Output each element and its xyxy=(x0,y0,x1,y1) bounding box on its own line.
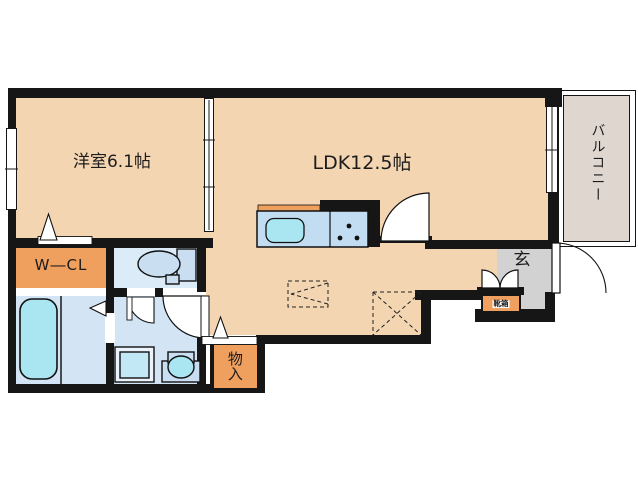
floor-washroom xyxy=(114,296,197,384)
room-label-shoebox: 靴箱 xyxy=(493,300,510,308)
room-label-wcl: W―CL xyxy=(35,258,88,274)
sliding-door-western-ldk xyxy=(204,98,214,232)
floor-toilet-room xyxy=(114,245,197,288)
wall-mid-vertical xyxy=(106,238,114,393)
floor-kitchen-zone xyxy=(206,240,431,335)
wall-ldk-bottom xyxy=(256,335,431,344)
floor-bathroom xyxy=(16,296,106,384)
room-label-western: 洋室6.1帖 xyxy=(73,154,151,172)
floor-entry-hall xyxy=(431,249,497,290)
room-label-ldk: LDK12.5帖 xyxy=(313,154,412,174)
wall-ldk-door-strip xyxy=(376,236,432,243)
floorplan: 洋室6.1帖 LDK12.5帖 W―CL 物入 玄 靴箱 バルコニー xyxy=(0,0,638,480)
wall-toilet-bottom-a xyxy=(106,288,127,297)
room-label-entrance: 玄 xyxy=(514,252,531,270)
window-left xyxy=(6,128,17,210)
window-balcony xyxy=(546,106,558,193)
room-label-balcony: バルコニー xyxy=(590,123,605,203)
wall-washroom-right-upper xyxy=(197,238,206,292)
wall-toilet-bottom-b xyxy=(155,288,163,297)
wall-washroom-right-lower xyxy=(197,338,206,384)
room-label-storage: 物入 xyxy=(226,351,242,381)
wall-hall-north xyxy=(425,240,553,249)
wall-balcony-post xyxy=(545,88,562,107)
entrance-door-icon xyxy=(552,243,606,293)
wall-top xyxy=(8,88,562,98)
